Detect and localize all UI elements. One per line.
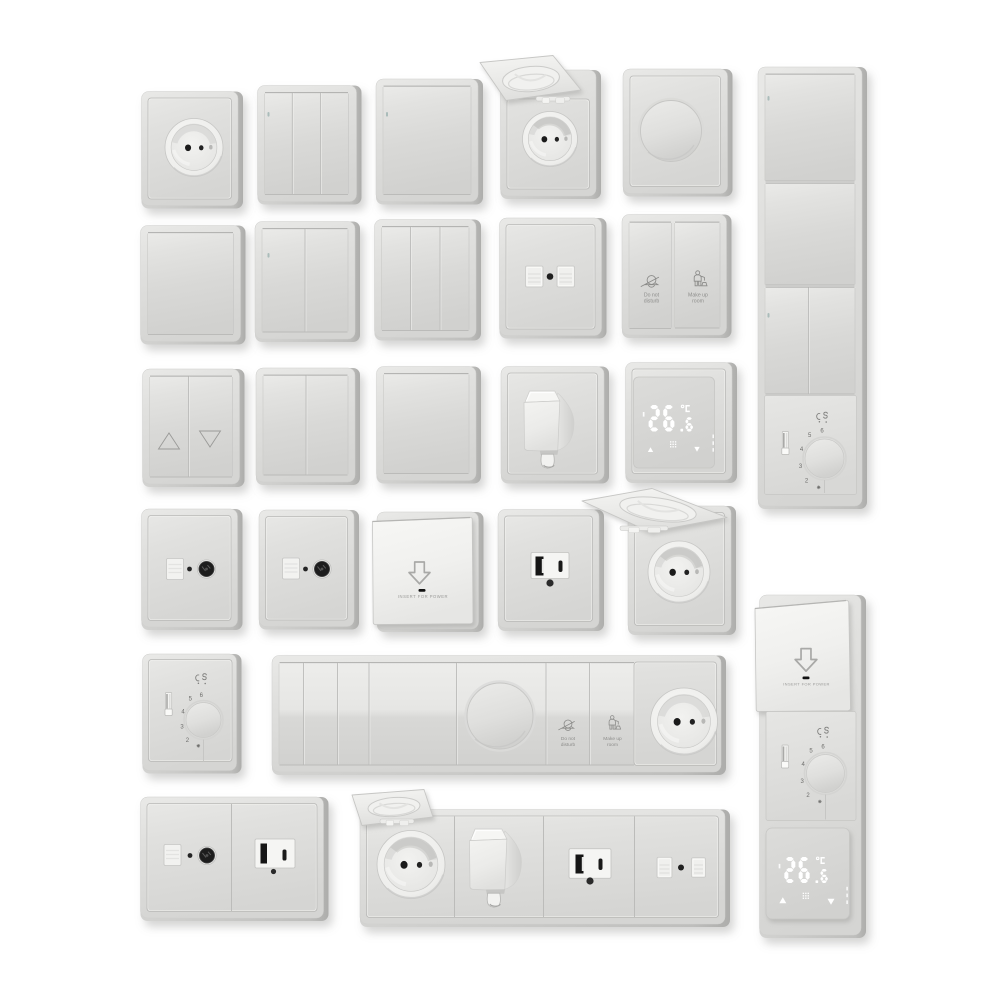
svg-text:room: room	[692, 299, 704, 305]
svg-text:INSERT FOR POWER: INSERT FOR POWER	[398, 594, 448, 599]
svg-text:disturb: disturb	[644, 299, 660, 305]
svg-text:disturb: disturb	[561, 742, 576, 748]
svg-text:INSERT FOR POWER: INSERT FOR POWER	[783, 682, 830, 687]
svg-text:Make up: Make up	[603, 736, 622, 742]
svg-text:room: room	[607, 742, 618, 748]
svg-text:Do not: Do not	[561, 736, 576, 742]
